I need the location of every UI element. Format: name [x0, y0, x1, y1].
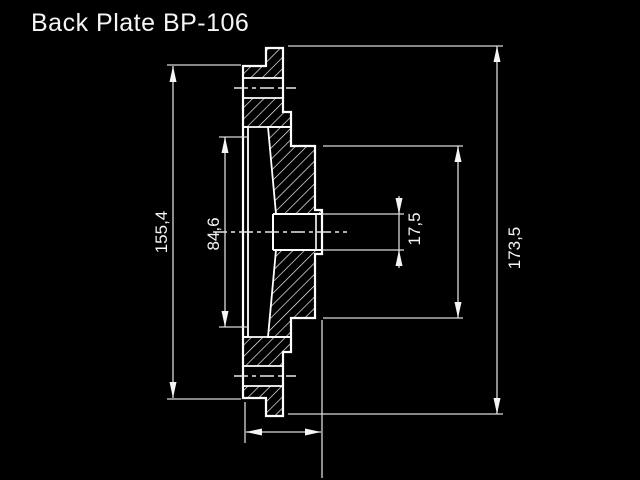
arrowhead-down [396, 198, 403, 214]
drawing-page: Back Plate BP-106 [0, 0, 640, 480]
arrowhead-up [455, 146, 462, 162]
dimension-label: 17,5 [405, 212, 424, 245]
arrowhead-up [222, 137, 229, 153]
arrowhead-down [170, 382, 177, 398]
dimension-label: 84,6 [204, 217, 223, 250]
hatch-region-rim-top-upper [243, 48, 283, 78]
arrowhead-up [494, 46, 501, 62]
arrowhead-right [305, 429, 321, 436]
arrowhead-up [170, 66, 177, 82]
dimension-outer-face-diameter: 155,4 [152, 65, 241, 399]
part-cross-section [213, 48, 347, 416]
arrowhead-up [396, 250, 403, 266]
dimension-label: 155,4 [152, 211, 171, 254]
dimensions: 155,4 84,6 17,5 [152, 46, 524, 478]
arrowhead-down [494, 398, 501, 414]
hatch-region-rim-bottom-lower [243, 386, 283, 416]
arrowhead-left [246, 429, 262, 436]
arrowhead-down [455, 302, 462, 318]
drawing-title: Back Plate BP-106 [31, 9, 249, 37]
arrowhead-down [222, 311, 229, 327]
dimension-label: 173,5 [505, 227, 524, 270]
technical-drawing-canvas: Back Plate BP-106 [0, 0, 640, 480]
